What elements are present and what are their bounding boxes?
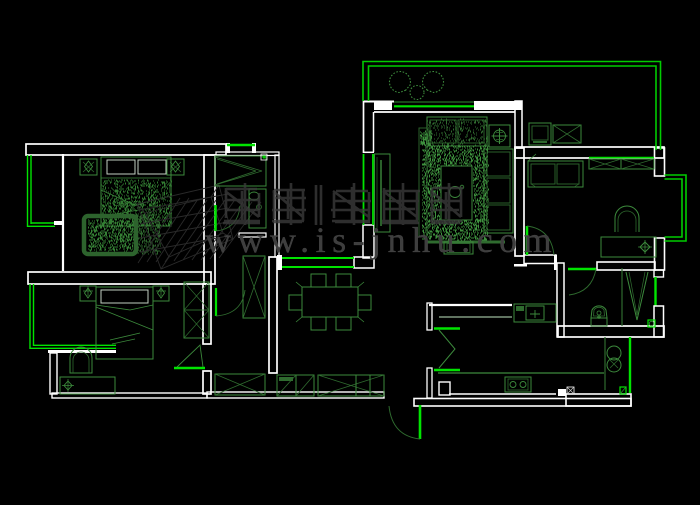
- svg-text:www.is-jnhu.com: www.is-jnhu.com: [205, 220, 558, 260]
